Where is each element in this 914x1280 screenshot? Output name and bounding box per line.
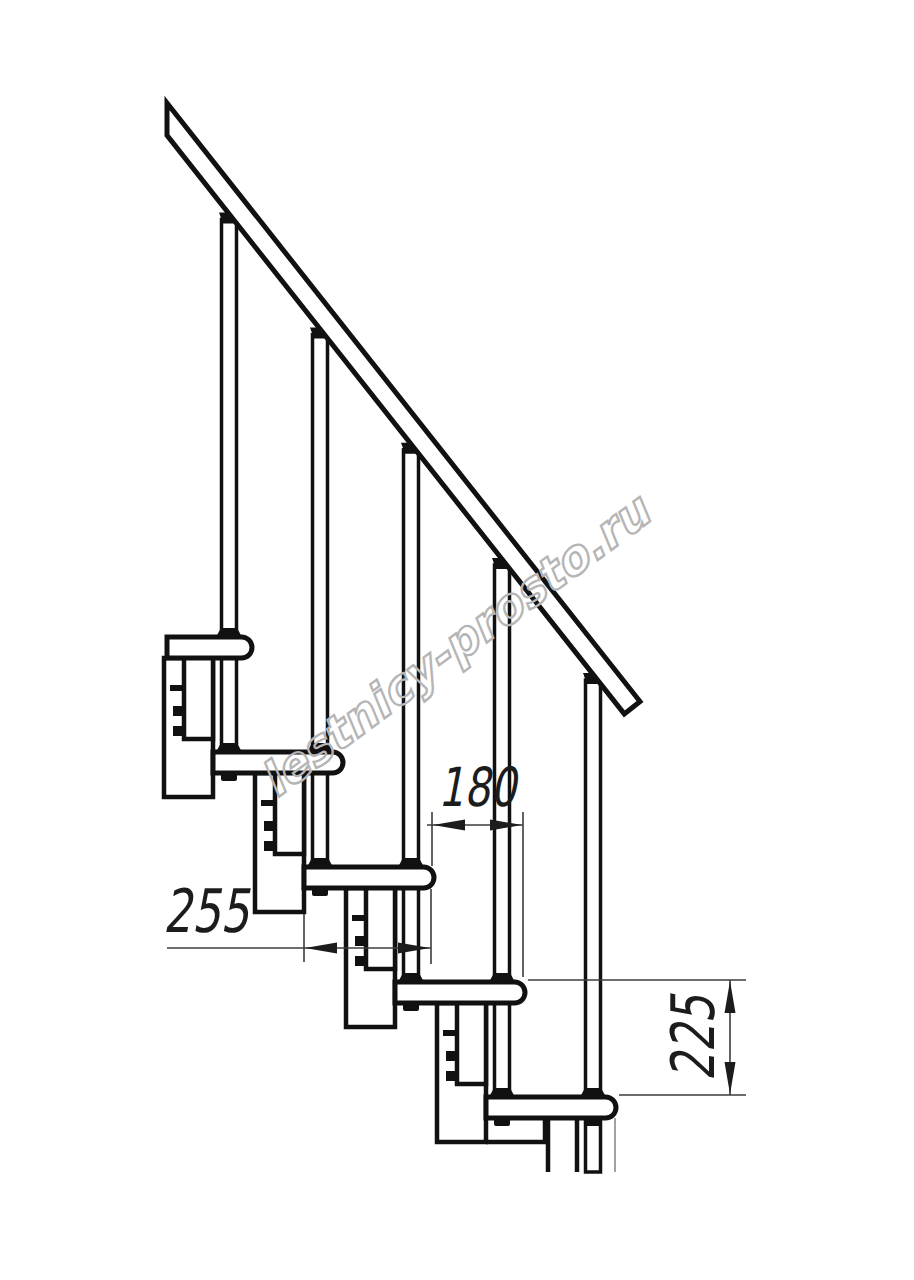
bolt-icon: [446, 1071, 457, 1081]
bolt-icon: [355, 936, 366, 946]
tread: [304, 867, 434, 888]
nut-icon: [312, 888, 328, 896]
rod: [222, 656, 237, 752]
arrow-left-icon: [433, 820, 465, 831]
bolt-icon: [443, 1030, 455, 1036]
bolt-icon: [173, 706, 184, 716]
rod: [313, 771, 328, 867]
tread: [395, 982, 525, 1003]
bolt-icon: [352, 915, 364, 921]
tread: [167, 637, 252, 658]
dimension-label-180: 180: [438, 756, 520, 819]
support-module: [164, 656, 213, 797]
baluster: [313, 335, 328, 752]
arrow-left-icon: [305, 943, 337, 954]
baluster: [586, 680, 601, 1097]
baluster: [222, 220, 237, 637]
support-module: [437, 1001, 545, 1142]
nut-icon: [403, 1003, 419, 1011]
dimension-225: 225: [528, 980, 746, 1095]
rod: [404, 886, 419, 982]
bolt-icon: [173, 726, 184, 736]
support-module-cut: [548, 1116, 615, 1172]
nut-icon: [221, 773, 237, 781]
rod: [495, 1001, 510, 1097]
dimension-label-225: 225: [658, 993, 728, 1081]
nut-icon: [494, 1118, 510, 1126]
bolt-icon: [170, 685, 182, 691]
technical-drawing-canvas: 180 255 225 lestnicy-prosto.ru: [0, 0, 914, 1280]
support-module: [346, 886, 395, 1027]
tread: [486, 1097, 616, 1118]
bolt-icon: [264, 821, 275, 831]
bolt-icon: [446, 1051, 457, 1061]
nut-icon: [585, 1118, 601, 1126]
bolt-icon: [355, 956, 366, 966]
bolt-icon: [264, 841, 275, 851]
dimension-label-255: 255: [163, 876, 251, 946]
bolt-icon: [261, 800, 273, 806]
staircase-drawing: 180 255 225 lestnicy-prosto.ru: [0, 0, 914, 1280]
